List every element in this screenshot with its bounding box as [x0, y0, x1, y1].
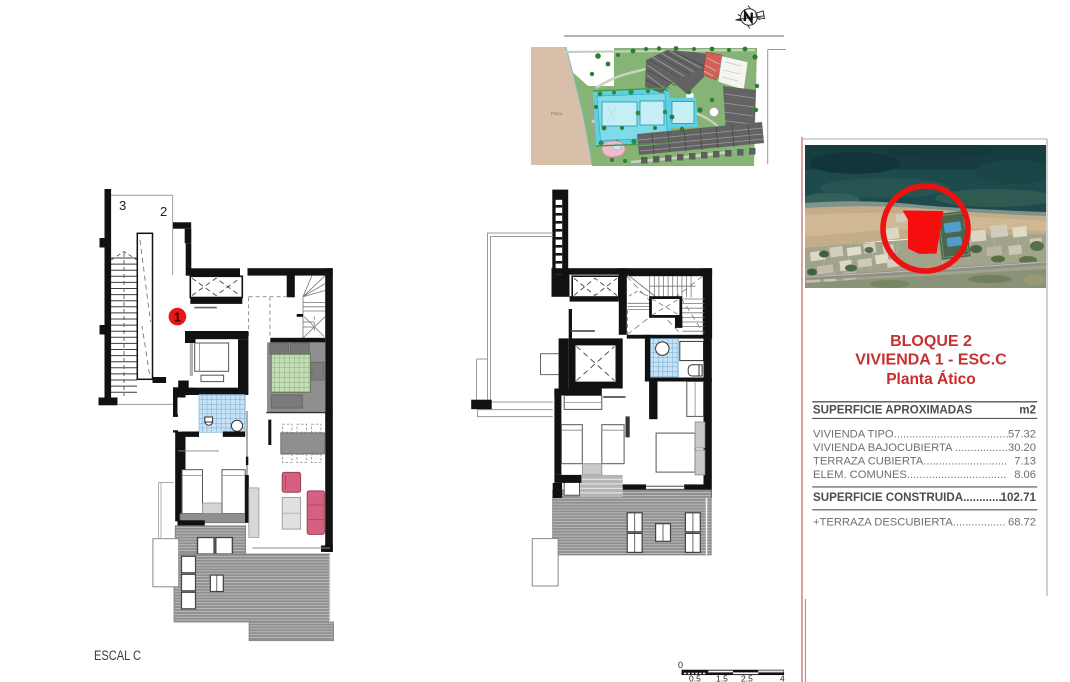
svg-text:2.5: 2.5: [741, 674, 753, 682]
svg-text:8.06: 8.06: [1014, 469, 1036, 481]
svg-text:0.5: 0.5: [689, 674, 701, 682]
svg-text:57.32: 57.32: [1008, 429, 1036, 441]
svg-text:3: 3: [119, 198, 126, 213]
svg-text:68.72: 68.72: [1008, 517, 1036, 529]
svg-text:30.20: 30.20: [1008, 442, 1036, 454]
svg-text:TERRAZA CUBIERTA..............: TERRAZA CUBIERTA........................…: [813, 456, 1007, 468]
svg-text:2: 2: [160, 204, 167, 219]
svg-text:4: 4: [780, 674, 785, 682]
svg-text:VIVIENDA 1 - ESC.C: VIVIENDA 1 - ESC.C: [855, 352, 1007, 369]
svg-text:Playa: Playa: [551, 111, 563, 116]
svg-text:SUPERFICIE CONSTRUIDA.........: SUPERFICIE CONSTRUIDA.............: [813, 491, 1005, 504]
svg-text:7.13: 7.13: [1014, 456, 1036, 468]
svg-text:1: 1: [174, 309, 181, 324]
svg-text:VIVIENDA TIPO.................: VIVIENDA TIPO...........................…: [813, 429, 1009, 441]
svg-text:0: 0: [678, 660, 683, 670]
svg-text:1.5: 1.5: [716, 674, 728, 682]
svg-text:ELEM. COMUNES.................: ELEM. COMUNES...........................…: [813, 469, 1006, 481]
svg-text:ESCAL C: ESCAL C: [94, 648, 141, 663]
svg-text:BLOQUE 2: BLOQUE 2: [890, 333, 972, 350]
svg-text:SUPERFICIE APROXIMADAS: SUPERFICIE APROXIMADAS: [813, 404, 973, 417]
svg-text:m2: m2: [1019, 404, 1036, 417]
svg-text:+TERRAZA DESCUBIERTA..........: +TERRAZA DESCUBIERTA.................: [813, 517, 1006, 529]
svg-text:VIVIENDA BAJOCUBIERTA ........: VIVIENDA BAJOCUBIERTA .................: [813, 442, 1008, 454]
svg-text:Planta Ático: Planta Ático: [886, 371, 976, 388]
svg-text:102.71: 102.71: [1001, 491, 1037, 504]
